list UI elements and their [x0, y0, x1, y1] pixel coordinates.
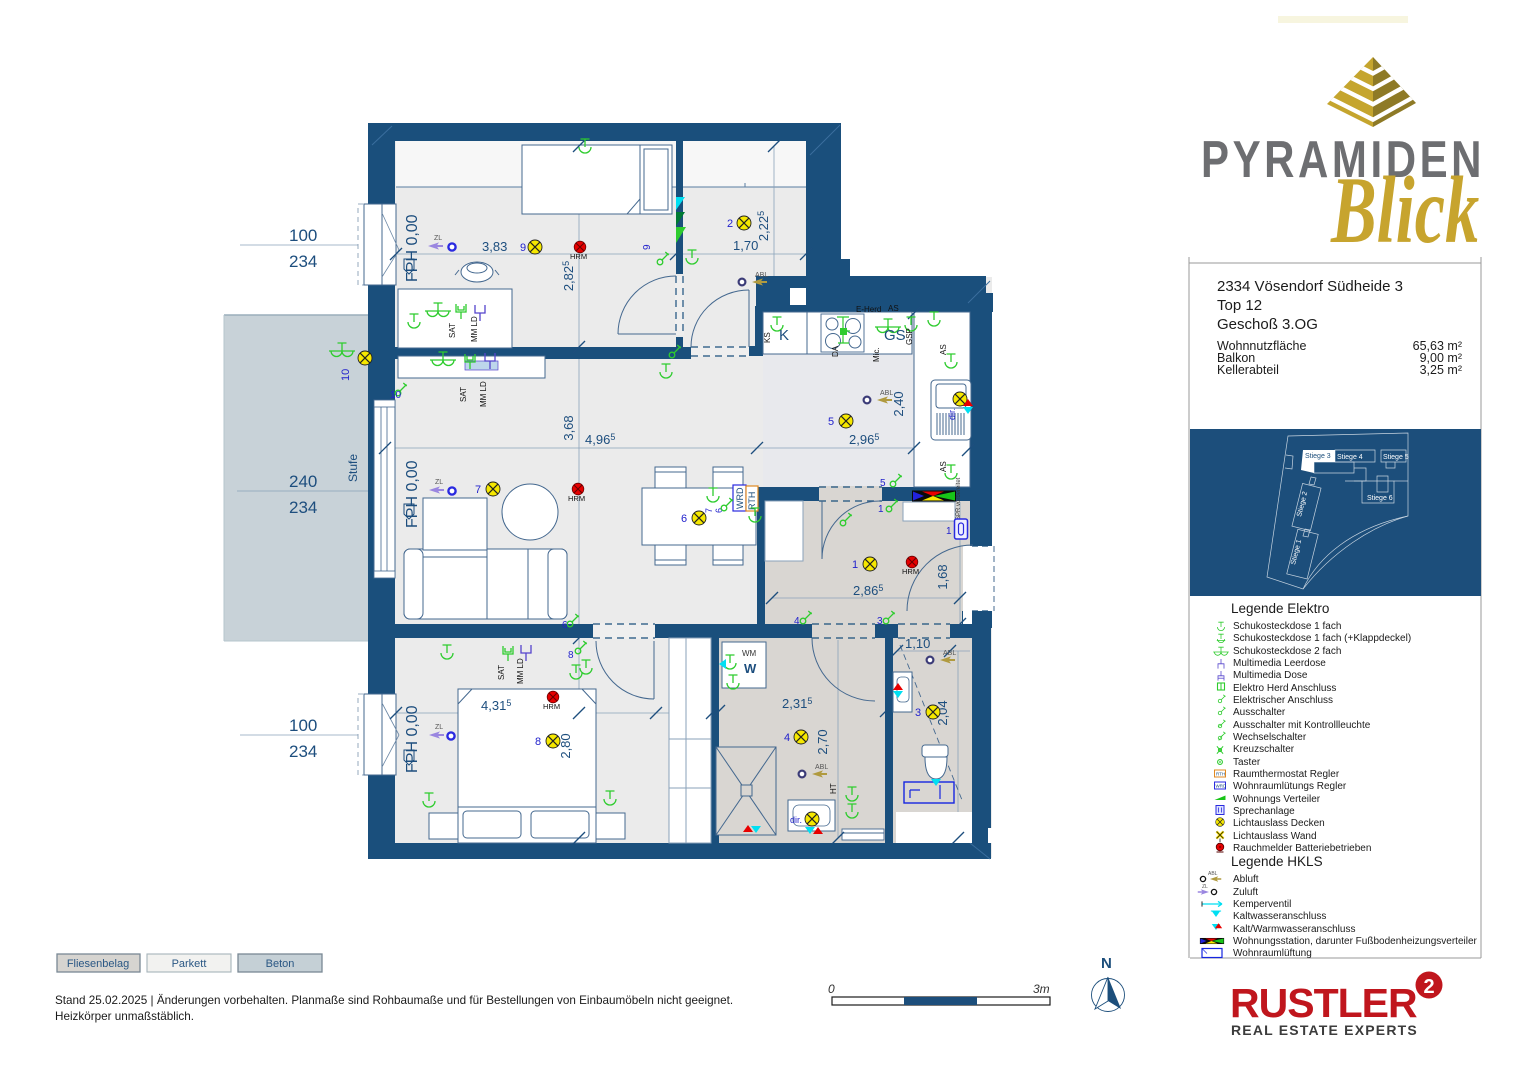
svg-text:ABL: ABL	[1208, 871, 1218, 877]
svg-text:4: 4	[794, 616, 800, 627]
svg-text:4: 4	[784, 732, 790, 744]
svg-text:RUSTLER: RUSTLER	[1230, 980, 1417, 1026]
svg-text:FPH 0,00: FPH 0,00	[404, 460, 421, 528]
svg-text:Elektrischer Anschluss: Elektrischer Anschluss	[1233, 695, 1333, 706]
svg-text:2,70: 2,70	[815, 729, 830, 754]
svg-text:7: 7	[704, 508, 714, 513]
svg-text:Kaltwasseranschluss: Kaltwasseranschluss	[1233, 911, 1326, 922]
svg-text:10: 10	[390, 390, 402, 401]
svg-text:3: 3	[877, 616, 883, 627]
svg-text:E-Herd: E-Herd	[856, 305, 881, 314]
svg-text:3,25 m²: 3,25 m²	[1420, 363, 1462, 377]
svg-text:Wohnraumlütungs Regler: Wohnraumlütungs Regler	[1233, 781, 1347, 792]
svg-text:RTH: RTH	[747, 492, 757, 510]
svg-text:HRM: HRM	[902, 567, 919, 576]
svg-text:ZL: ZL	[434, 235, 442, 242]
svg-text:6: 6	[681, 513, 687, 525]
svg-text:K: K	[779, 327, 789, 344]
svg-text:5: 5	[880, 478, 886, 489]
svg-text:SPR vorbereitet: SPR vorbereitet	[956, 477, 962, 520]
svg-text:W: W	[744, 661, 757, 676]
svg-text:dir.: dir.	[790, 815, 802, 825]
svg-text:dir.: dir.	[947, 408, 957, 420]
svg-text:Multimedia Dose: Multimedia Dose	[1233, 670, 1308, 681]
svg-text:Heizkörper unmaßstäblich.: Heizkörper unmaßstäblich.	[55, 1010, 194, 1023]
svg-text:3: 3	[915, 707, 921, 719]
svg-text:AS: AS	[888, 304, 899, 313]
svg-text:234: 234	[289, 498, 317, 517]
svg-text:AS: AS	[939, 461, 948, 472]
svg-text:Wohnraumlüftung: Wohnraumlüftung	[1233, 948, 1312, 959]
svg-text:Stiege 6: Stiege 6	[1367, 495, 1393, 502]
svg-text:Kalt/Warmwasseranschluss: Kalt/Warmwasseranschluss	[1233, 924, 1355, 935]
svg-text:234: 234	[289, 742, 317, 761]
svg-text:Blick: Blick	[1330, 157, 1479, 263]
svg-text:3,68: 3,68	[561, 415, 576, 440]
svg-text:Taster: Taster	[1233, 757, 1261, 768]
svg-text:100: 100	[289, 226, 317, 245]
svg-text:Raumthermostat Regler: Raumthermostat Regler	[1233, 769, 1340, 780]
svg-text:N: N	[1101, 955, 1112, 972]
svg-text:MM LD: MM LD	[470, 316, 479, 342]
svg-text:234: 234	[289, 252, 317, 271]
svg-text:MM LD: MM LD	[479, 381, 488, 407]
svg-text:Lichtauslass Decken: Lichtauslass Decken	[1233, 818, 1325, 829]
svg-text:1,68: 1,68	[935, 564, 950, 589]
svg-text:2,40: 2,40	[891, 391, 906, 416]
svg-text:1: 1	[852, 559, 858, 571]
svg-text:SAT: SAT	[497, 665, 506, 680]
svg-text:5: 5	[828, 416, 834, 428]
svg-text:SAT: SAT	[448, 323, 457, 338]
svg-text:GS: GS	[884, 327, 906, 344]
svg-text:Zuluft: Zuluft	[1233, 887, 1258, 898]
svg-text:Rauchmelder Batteriebetrieben: Rauchmelder Batteriebetrieben	[1233, 843, 1371, 854]
svg-text:2334 Vösendorf Südheide 3: 2334 Vösendorf Südheide 3	[1217, 278, 1403, 295]
svg-text:100: 100	[289, 716, 317, 735]
svg-text:Kemperventil: Kemperventil	[1233, 899, 1291, 910]
svg-text:Stiege 5: Stiege 5	[1383, 454, 1409, 461]
svg-text:Kreuzschalter: Kreuzschalter	[1233, 744, 1295, 755]
svg-text:ZL: ZL	[1202, 884, 1208, 890]
svg-text:Mic.: Mic.	[872, 347, 881, 362]
svg-text:Multimedia Leerdose: Multimedia Leerdose	[1233, 658, 1326, 669]
svg-text:Fliesenbelag: Fliesenbelag	[67, 958, 129, 970]
svg-text:Wohnungs Verteiler: Wohnungs Verteiler	[1233, 794, 1321, 805]
svg-text:Stiege 3: Stiege 3	[1305, 453, 1331, 460]
svg-text:Schukosteckdose 1 fach: Schukosteckdose 1 fach	[1233, 621, 1341, 632]
svg-text:Schukosteckdose 1 fach (+Klapp: Schukosteckdose 1 fach (+Klappdeckel)	[1233, 633, 1411, 644]
svg-text:Legende Elektro: Legende Elektro	[1231, 601, 1329, 616]
svg-text:SAT: SAT	[459, 387, 468, 402]
svg-text:AS: AS	[939, 344, 948, 355]
svg-text:0: 0	[828, 982, 835, 996]
svg-text:Ausschalter mit Kontrollleucht: Ausschalter mit Kontrollleuchte	[1233, 720, 1371, 731]
svg-text:6: 6	[562, 620, 568, 631]
svg-text:Lichtauslass Wand: Lichtauslass Wand	[1233, 831, 1317, 842]
svg-text:Geschoß 3.OG: Geschoß 3.OG	[1217, 316, 1318, 333]
svg-text:KS: KS	[763, 332, 772, 343]
svg-text:Sprechanlage: Sprechanlage	[1233, 806, 1295, 817]
svg-text:ZL: ZL	[435, 724, 443, 731]
svg-text:1,70: 1,70	[733, 238, 758, 253]
svg-text:REAL ESTATE EXPERTS: REAL ESTATE EXPERTS	[1231, 1022, 1418, 1038]
svg-text:1: 1	[946, 526, 952, 537]
svg-text:2,80: 2,80	[558, 733, 573, 758]
svg-text:HRM: HRM	[570, 252, 587, 261]
svg-text:1: 1	[878, 504, 884, 515]
svg-text:9: 9	[642, 244, 653, 250]
svg-text:ZL: ZL	[435, 479, 443, 486]
svg-text:Top 12: Top 12	[1217, 297, 1262, 314]
svg-text:Parkett: Parkett	[172, 958, 207, 970]
svg-text:DA: DA	[831, 345, 840, 357]
svg-text:8: 8	[535, 736, 541, 748]
svg-text:Stiege 4: Stiege 4	[1337, 454, 1363, 461]
svg-text:7: 7	[475, 484, 481, 496]
svg-text:WM: WM	[742, 649, 757, 658]
svg-text:Schukosteckdose 2 fach: Schukosteckdose 2 fach	[1233, 646, 1341, 657]
svg-text:Ausschalter: Ausschalter	[1233, 707, 1286, 718]
svg-text:10: 10	[340, 369, 352, 381]
svg-text:WRD: WRD	[1216, 784, 1227, 789]
svg-text:2: 2	[727, 218, 733, 230]
svg-text:Abluft: Abluft	[1233, 874, 1259, 885]
svg-text:1,10: 1,10	[905, 636, 930, 651]
svg-text:RTH: RTH	[1216, 772, 1225, 777]
svg-text:Beton: Beton	[266, 958, 295, 970]
svg-text:3m: 3m	[1033, 982, 1050, 996]
svg-text:8: 8	[568, 650, 574, 661]
svg-text:MM LD: MM LD	[516, 658, 525, 684]
svg-text:HRM: HRM	[568, 494, 585, 503]
svg-text:WRD: WRD	[735, 487, 745, 509]
svg-text:3,83: 3,83	[482, 239, 507, 254]
svg-text:Elektro Herd Anschluss: Elektro Herd Anschluss	[1233, 683, 1336, 694]
svg-text:Stufe: Stufe	[346, 454, 360, 482]
svg-text:GSP: GSP	[905, 328, 914, 345]
svg-text:Wohnungsstation, darunter Fußb: Wohnungsstation, darunter Fußbodenheizun…	[1233, 936, 1478, 947]
svg-text:Wechselschalter: Wechselschalter	[1233, 732, 1307, 743]
svg-text:240: 240	[289, 472, 317, 491]
svg-text:Stand 25.02.2025 | Änderungen: Stand 25.02.2025 | Änderungen vorbehalte…	[55, 994, 733, 1007]
svg-text:9: 9	[520, 242, 526, 254]
svg-text:HRM: HRM	[543, 702, 560, 711]
svg-text:Legende HKLS: Legende HKLS	[1231, 854, 1323, 869]
svg-text:2: 2	[1423, 976, 1434, 998]
svg-text:Kellerabteil: Kellerabteil	[1217, 363, 1279, 377]
svg-text:HT: HT	[829, 783, 838, 794]
